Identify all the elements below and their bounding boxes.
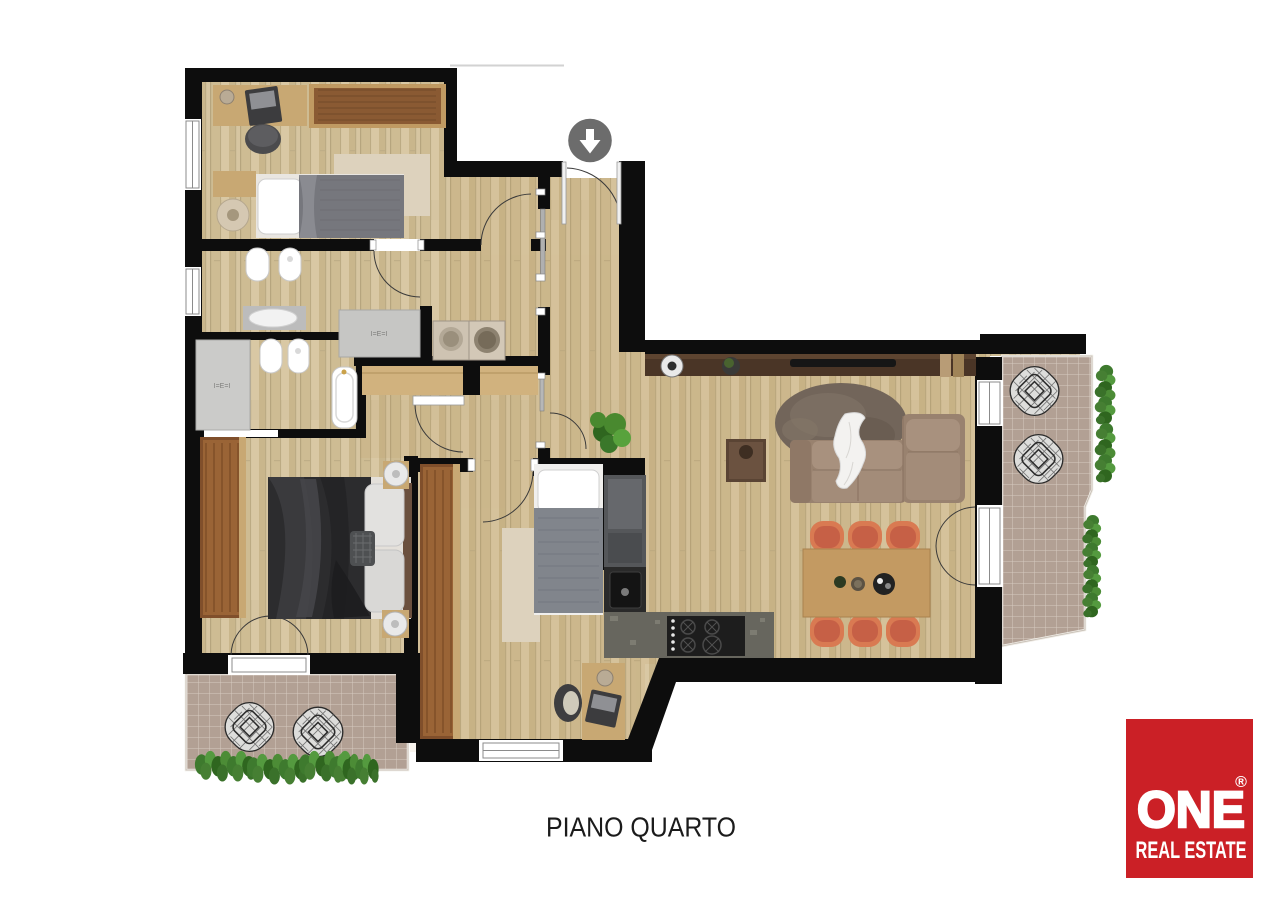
svg-text:REAL ESTATE: REAL ESTATE (1136, 837, 1247, 864)
svg-text:ONE: ONE (1137, 781, 1245, 838)
svg-text:PIANO QUARTO: PIANO QUARTO (546, 812, 736, 843)
svg-text:I=E=I: I=E=I (371, 331, 388, 338)
svg-text:I=E=I: I=E=I (214, 383, 231, 390)
svg-text:®: ® (1235, 774, 1247, 791)
